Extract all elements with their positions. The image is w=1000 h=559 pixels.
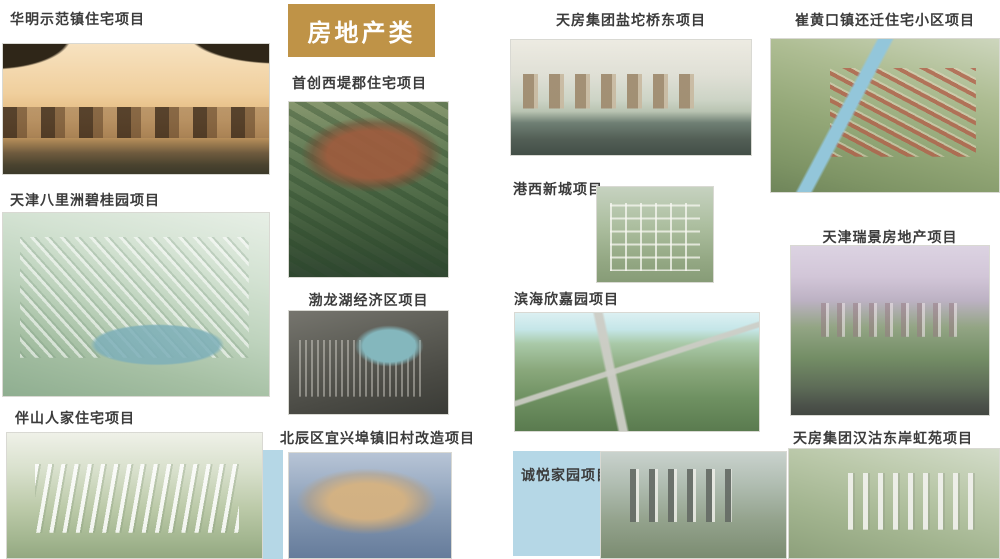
project-title-shouchuang: 首创西堤郡住宅项目 [292, 75, 427, 93]
decorative-blue-strip [263, 450, 283, 559]
project-photo-huaming [2, 43, 270, 175]
project-title-balizhou: 天津八里洲碧桂园项目 [10, 192, 160, 210]
category-banner: 房地产类 [288, 4, 435, 57]
project-photo-ruijing [790, 245, 990, 416]
project-photo-balizhou [2, 212, 270, 397]
project-photo-yantuo [510, 39, 752, 156]
project-title-chengyue: 诚悦家园项目 [521, 467, 611, 485]
project-photo-binhai [514, 312, 760, 432]
project-title-banshan: 伴山人家住宅项目 [15, 410, 135, 428]
project-photo-shouchuang [288, 101, 449, 278]
project-photo-chengyue [600, 451, 787, 559]
project-title-binhai: 滨海欣嘉园项目 [514, 291, 619, 309]
project-photo-gangxi [596, 186, 714, 283]
project-photo-cuihuangkou [770, 38, 1000, 193]
project-title-beichen: 北辰区宜兴埠镇旧村改造项目 [280, 430, 475, 448]
project-photo-beichen [288, 452, 452, 559]
project-photo-bolonghu [288, 310, 449, 415]
project-title-hangu: 天房集团汉沽东岸虹苑项目 [793, 430, 973, 448]
project-title-gangxi: 港西新城项目 [513, 181, 603, 199]
project-title-bolonghu: 渤龙湖经济区项目 [288, 292, 449, 310]
project-title-cuihuangkou: 崔黄口镇还迁住宅小区项目 [770, 12, 1000, 30]
project-title-huaming: 华明示范镇住宅项目 [10, 11, 145, 29]
brochure-page: 房地产类 华明示范镇住宅项目 天津八里洲碧桂园项目 伴山人家住宅项目 首创西堤郡… [0, 0, 1000, 559]
project-photo-banshan [6, 432, 263, 559]
project-title-yantuo: 天房集团盐坨桥东项目 [510, 12, 752, 30]
project-photo-hangu [788, 448, 1000, 559]
